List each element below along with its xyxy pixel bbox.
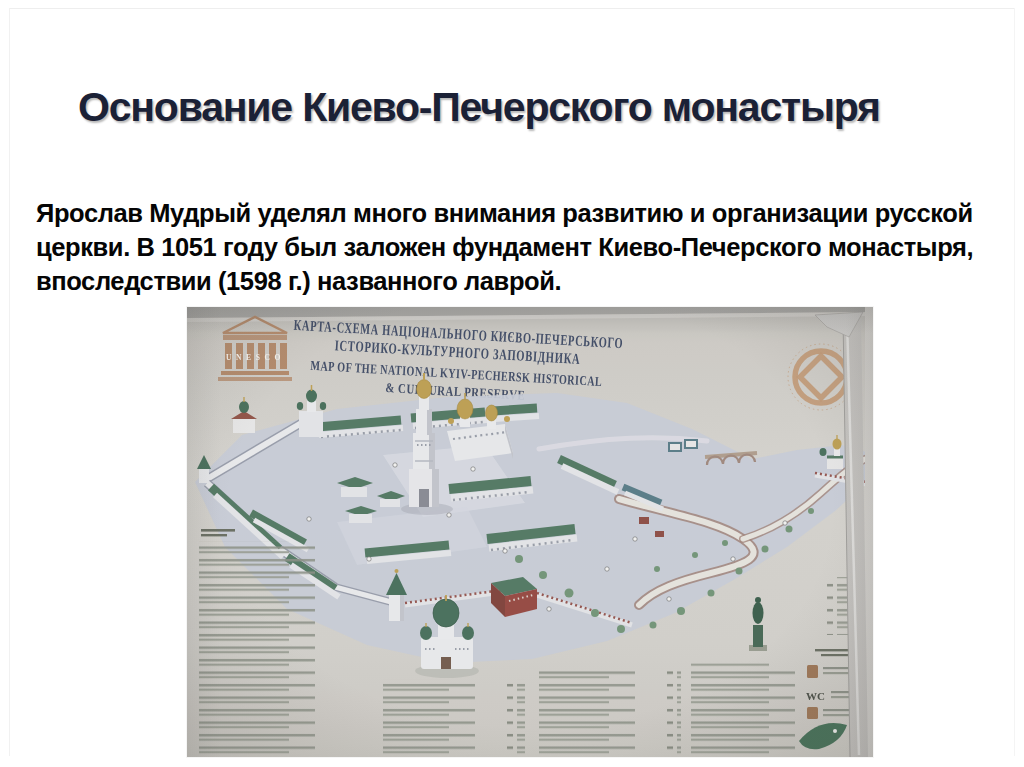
slide-border-top: [10, 8, 1014, 9]
legend-column-2: [383, 679, 525, 755]
slide-border-right: [1014, 8, 1015, 756]
wc-label: WC: [806, 690, 825, 702]
legend-column-4: [691, 663, 795, 755]
unesco-letters: UNESCO: [226, 353, 285, 362]
body-line-1: Ярослав Мудрый уделял много внимания раз…: [36, 196, 996, 230]
presentation-slide: Основание Киево-Печерского монастыря Яро…: [0, 0, 1024, 767]
page-title: Основание Киево-Печерского монастыря: [78, 84, 880, 131]
map-photo-image: UNESCO КАРТА-СХЕМА НАЦІОНАЛЬНОГО КИЄВО-П…: [187, 307, 873, 757]
legend-kiosk-icon: [807, 707, 818, 719]
body-line-2: церкви. В 1051 году был заложен фундамен…: [36, 230, 996, 264]
slide-border-left: [9, 8, 10, 756]
body-paragraph: Ярослав Мудрый уделял много внимания раз…: [36, 196, 996, 298]
legend-column-1: [199, 541, 331, 755]
map-photo: UNESCO КАРТА-СХЕМА НАЦІОНАЛЬНОГО КИЄВО-П…: [187, 307, 873, 757]
body-line-3: впоследствии (1598 г.) названного лаврой…: [36, 264, 996, 298]
legend-column-3: [539, 669, 681, 755]
legend-cave-icon: [807, 665, 818, 678]
